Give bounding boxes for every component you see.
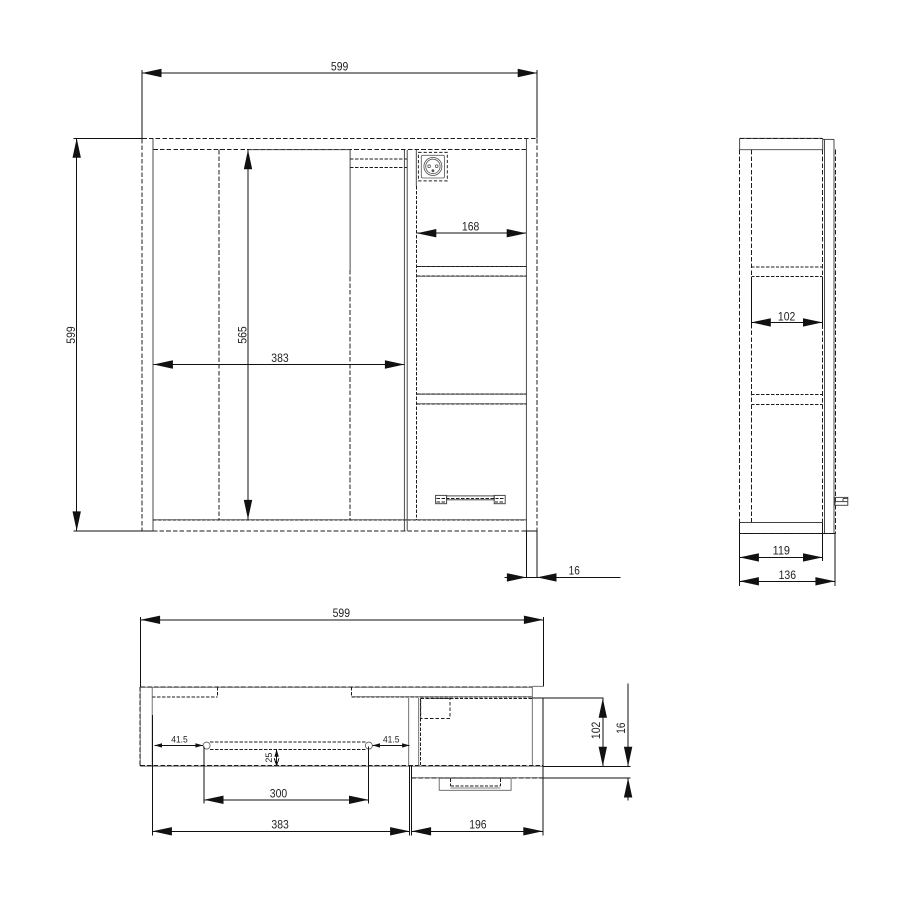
svg-text:119: 119 — [773, 543, 791, 557]
svg-text:102: 102 — [778, 310, 796, 324]
svg-text:102: 102 — [589, 721, 603, 739]
svg-text:196: 196 — [469, 817, 487, 831]
svg-text:16: 16 — [614, 722, 628, 733]
svg-text:41.5: 41.5 — [171, 735, 188, 745]
svg-text:136: 136 — [779, 568, 797, 582]
svg-text:599: 599 — [333, 606, 351, 620]
svg-text:599: 599 — [331, 60, 349, 74]
svg-text:16: 16 — [569, 564, 580, 578]
svg-text:300: 300 — [270, 786, 288, 800]
svg-text:168: 168 — [462, 219, 480, 233]
svg-text:565: 565 — [236, 326, 250, 344]
svg-text:41.5: 41.5 — [383, 735, 400, 745]
svg-text:383: 383 — [271, 817, 289, 831]
svg-text:383: 383 — [271, 351, 289, 365]
svg-text:599: 599 — [64, 326, 78, 344]
svg-text:25: 25 — [264, 753, 274, 763]
